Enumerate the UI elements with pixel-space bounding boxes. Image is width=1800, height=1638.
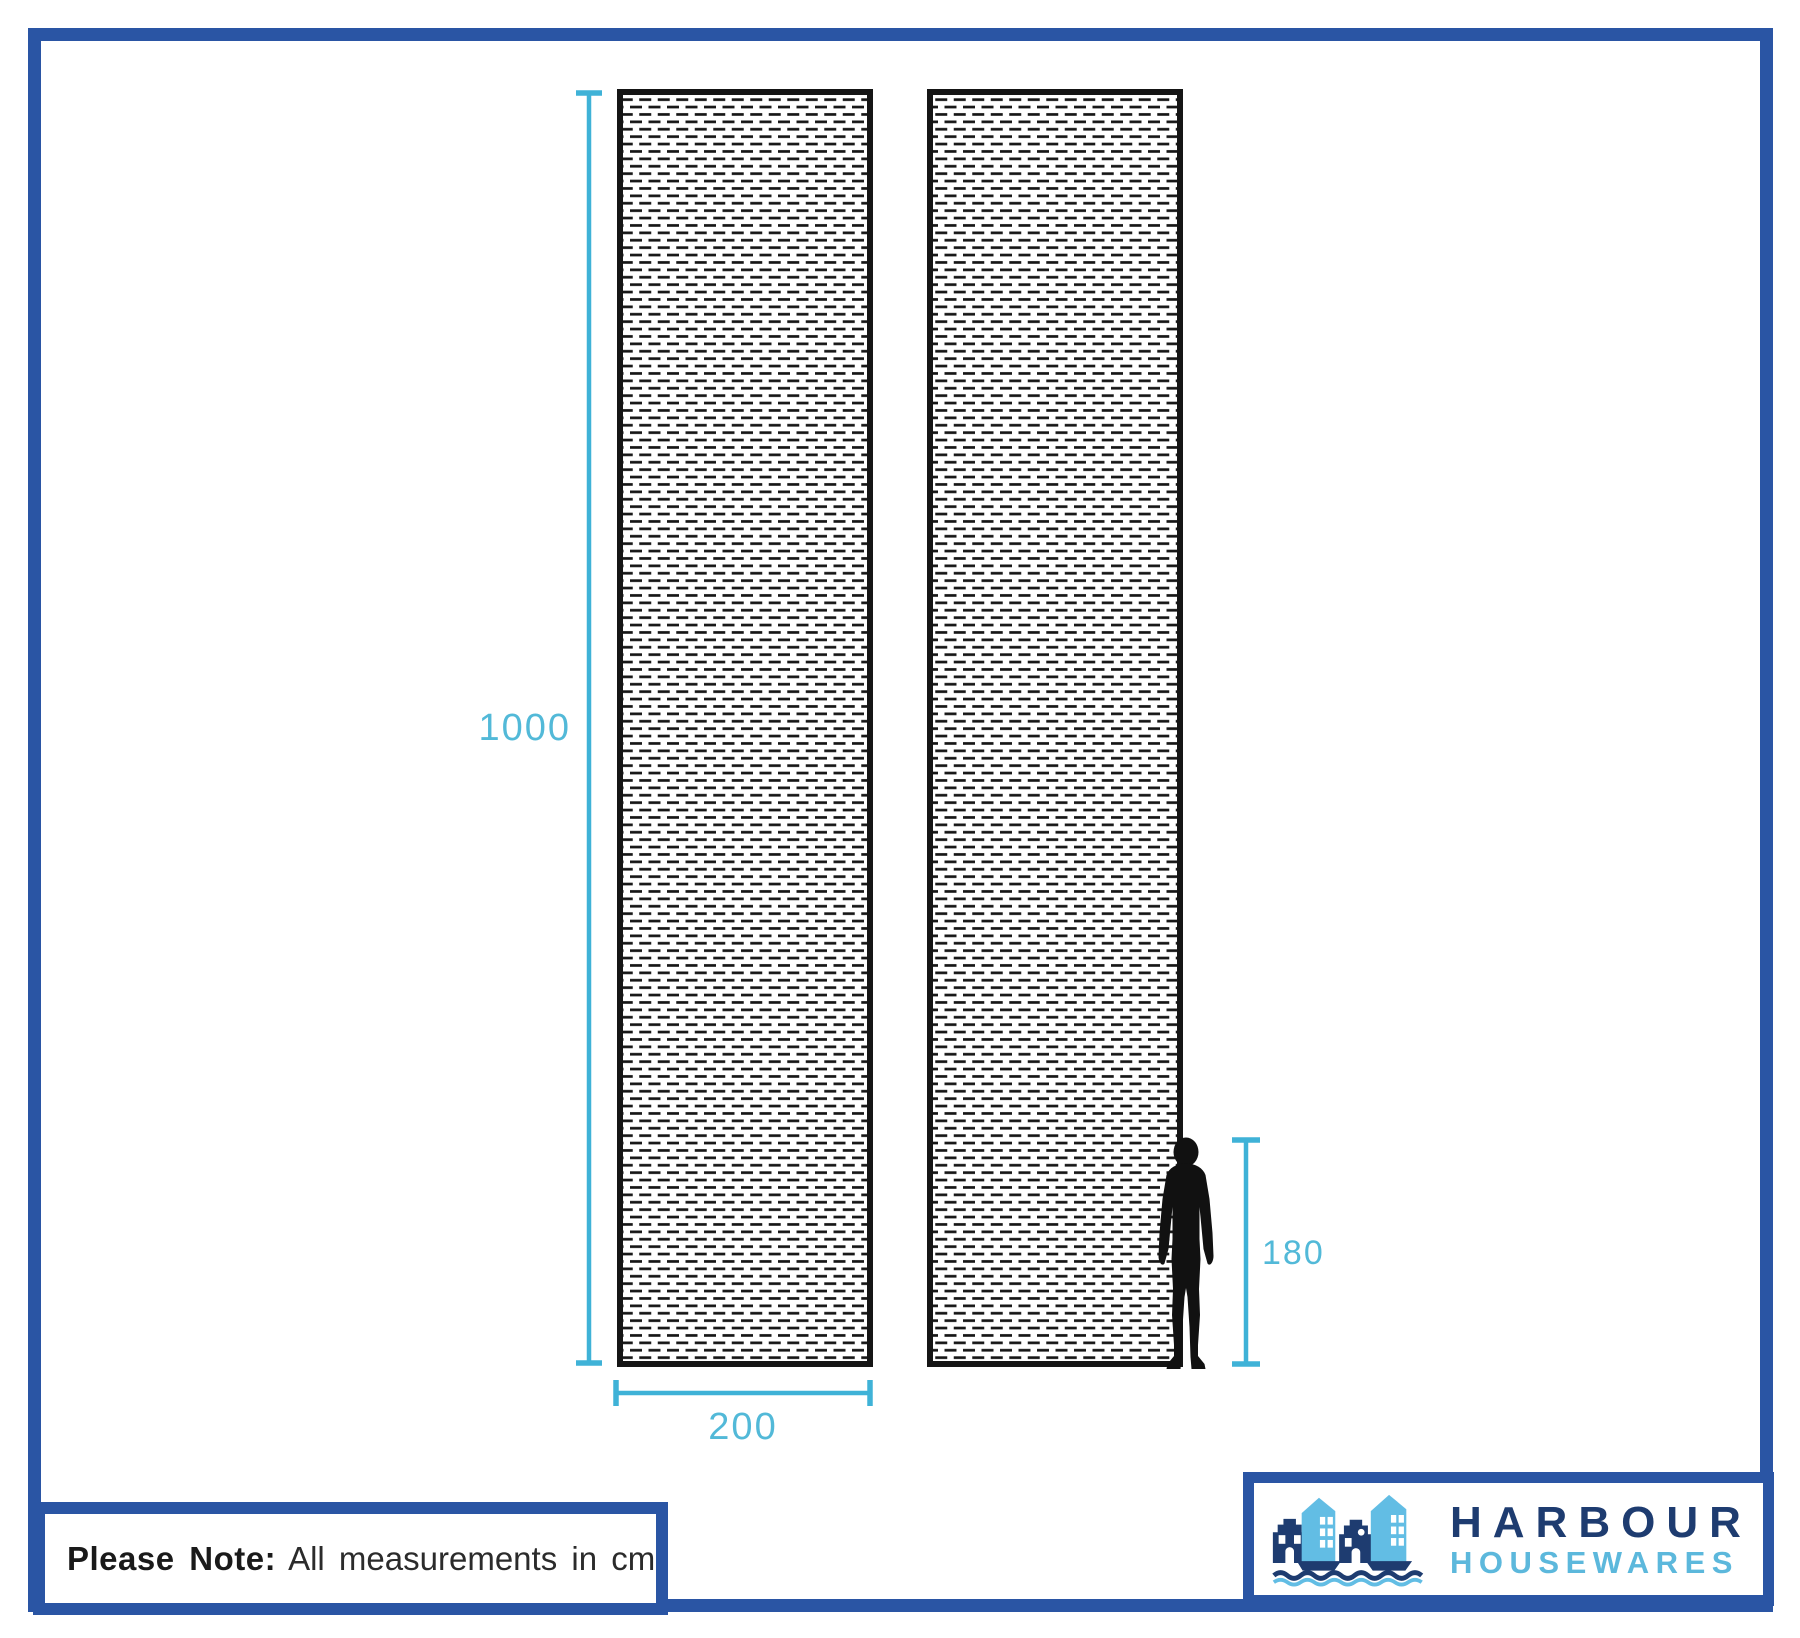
note-text: All measurements in cm xyxy=(288,1540,655,1578)
brand-name-top: HARBOUR xyxy=(1450,1500,1752,1546)
mesh-panel-left xyxy=(620,92,870,1364)
person-height-dimension-label: 180 xyxy=(1262,1226,1392,1280)
mesh-panel-right xyxy=(930,92,1180,1364)
height-dimension-label: 1000 xyxy=(411,701,571,755)
brand-name-bottom: HOUSEWARES xyxy=(1450,1546,1752,1579)
note-prefix: Please Note: xyxy=(67,1540,276,1578)
height-dimension-line xyxy=(576,93,602,1363)
person-dimension-line xyxy=(1232,1140,1260,1364)
dimension-diagram xyxy=(0,0,1800,1638)
brand-logo-text: HARBOUR HOUSEWARES xyxy=(1450,1500,1752,1579)
harbour-houses-sailboats-icon xyxy=(1270,1489,1438,1589)
measurement-note-box: Please Note: All measurements in cm xyxy=(33,1502,668,1615)
brand-logo-box: HARBOUR HOUSEWARES xyxy=(1243,1472,1774,1606)
width-dimension-label: 200 xyxy=(662,1400,824,1454)
product-dimension-diagram: 1000 200 180 Please Note: All measuremen… xyxy=(0,0,1800,1638)
